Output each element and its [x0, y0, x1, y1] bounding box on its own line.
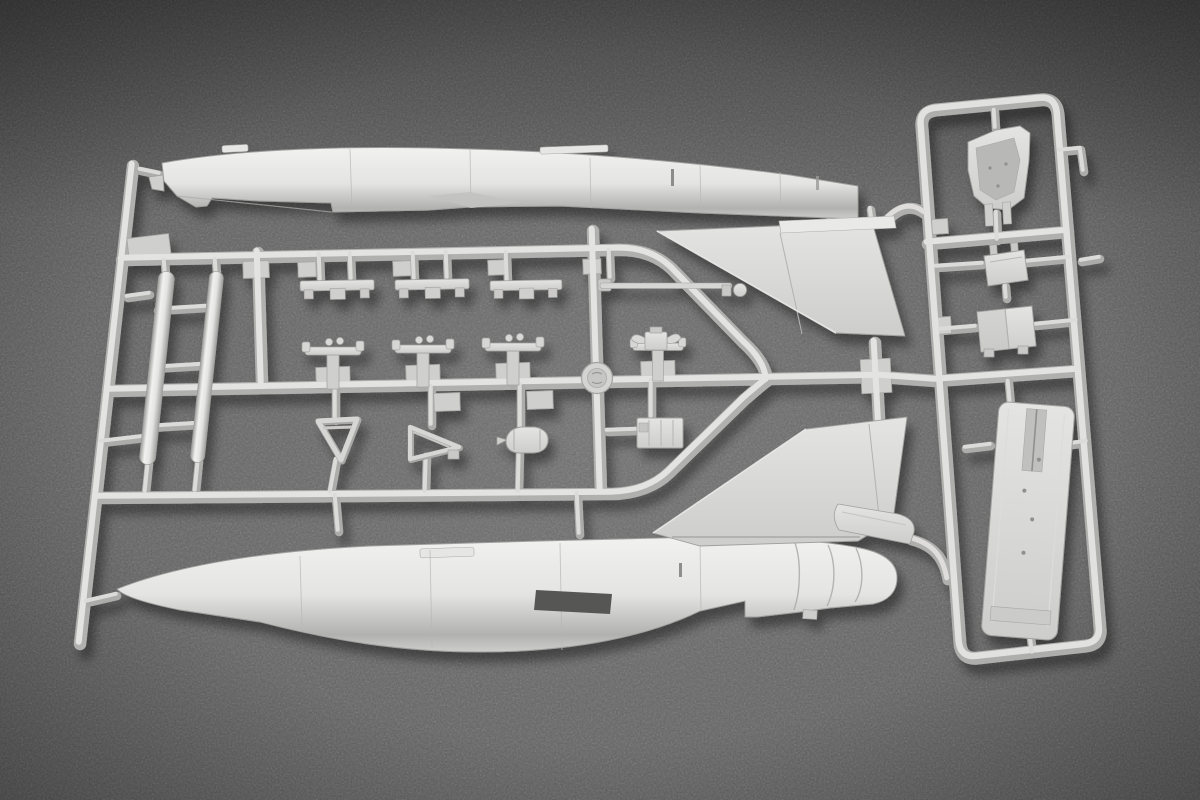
mold-logo-boss — [582, 363, 613, 394]
wing-opening-cutout — [534, 590, 612, 614]
ribbed-box-part — [637, 418, 683, 448]
instrument-box-large — [977, 306, 1036, 357]
photo-stage — [0, 0, 1200, 800]
sprue-photo — [0, 0, 1200, 800]
